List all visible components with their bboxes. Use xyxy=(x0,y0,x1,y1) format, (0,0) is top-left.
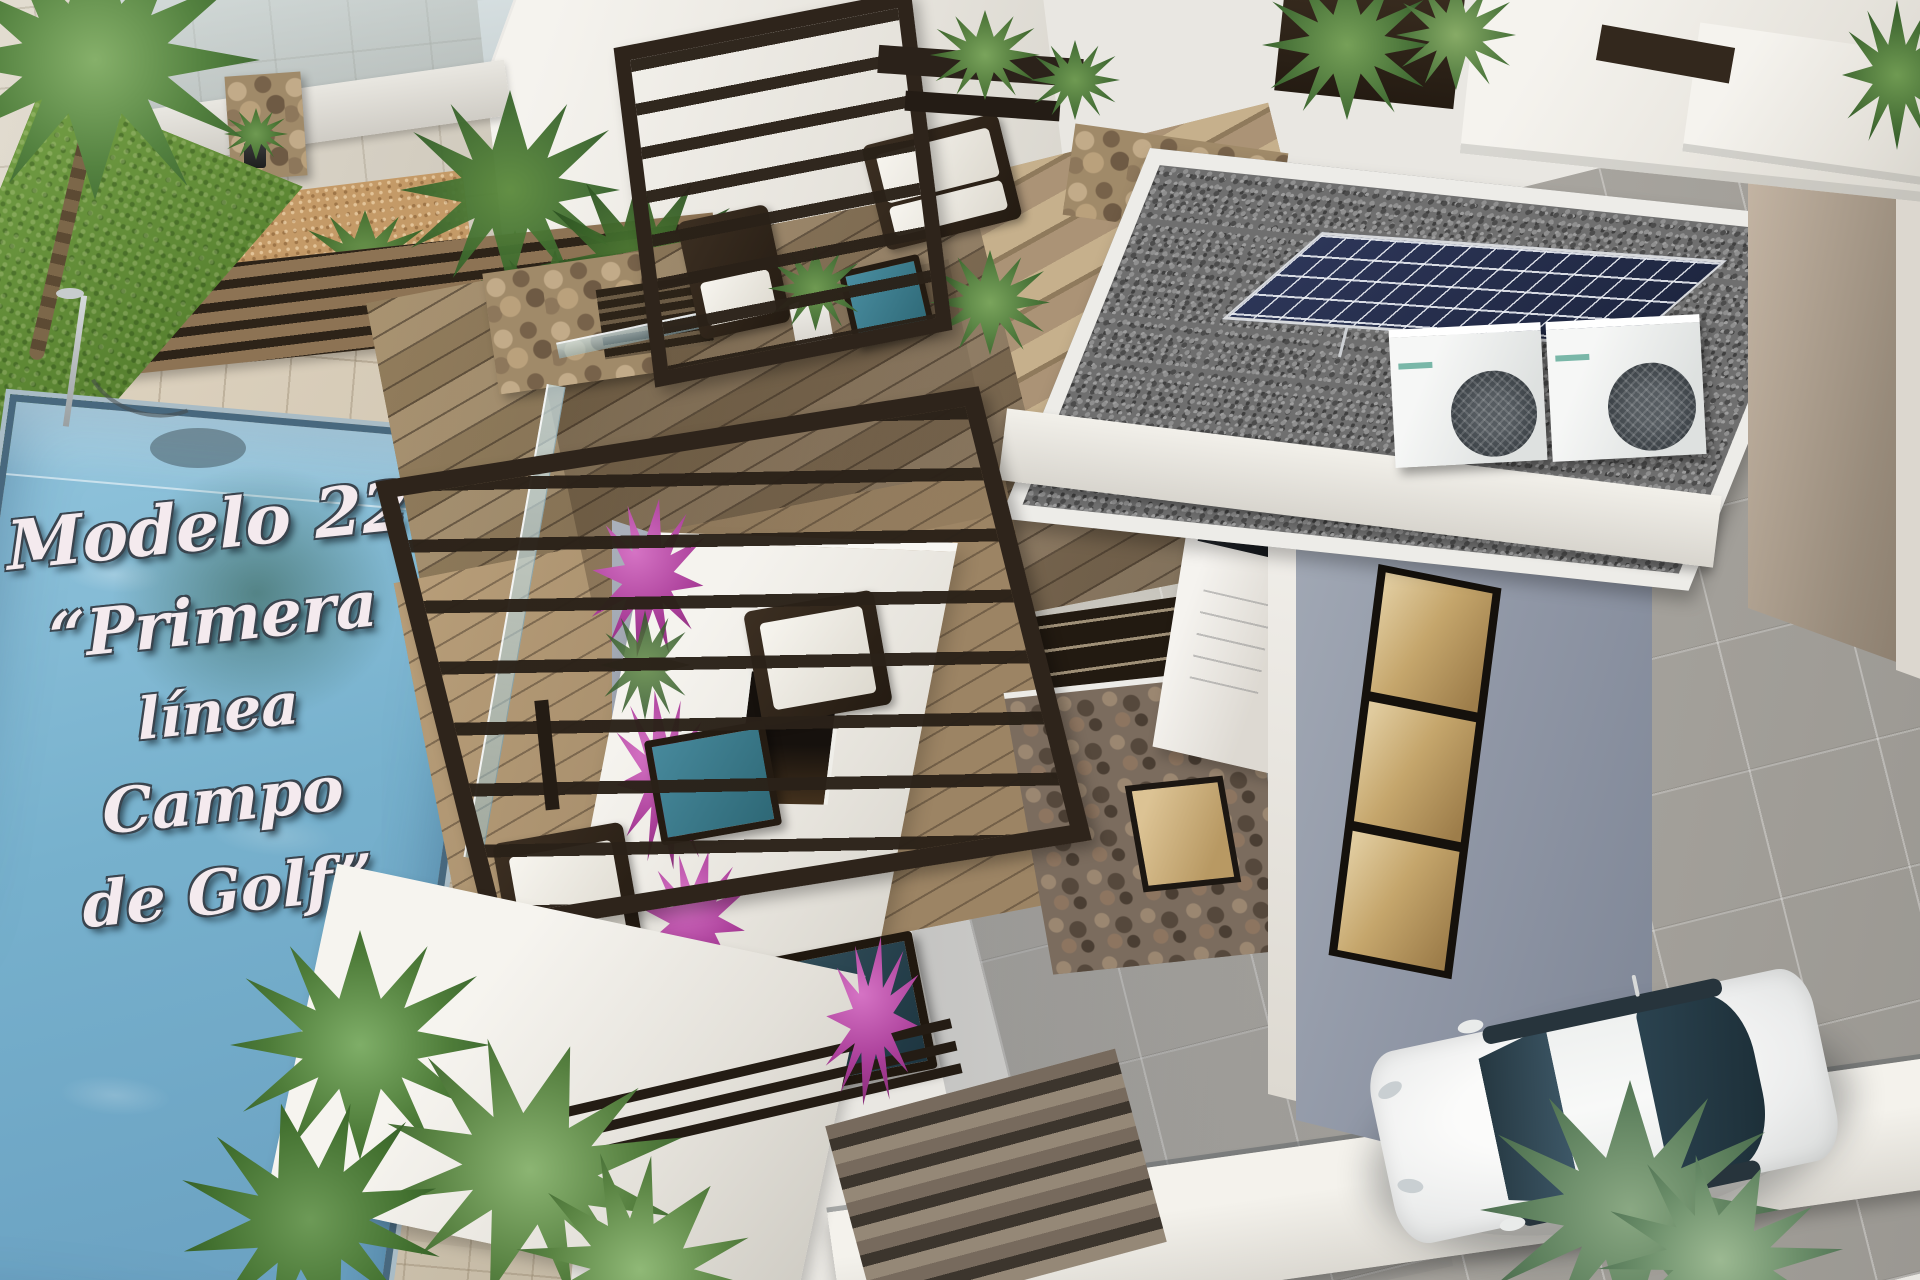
pool-watermark-line: “Primera xyxy=(48,573,379,670)
pool-watermark-line: línea xyxy=(136,674,301,748)
car-headlight xyxy=(1375,1078,1405,1103)
ac-unit xyxy=(1545,314,1706,462)
tower-window-pane xyxy=(1337,830,1459,970)
kitchen-drawer-lines xyxy=(1190,589,1272,694)
villa-aerial-render: Modelo 22 “Primera línea Campo de Golf” xyxy=(0,0,1920,1280)
ac-logo xyxy=(1398,362,1432,370)
ac-fan xyxy=(1606,360,1698,452)
car-headlight xyxy=(1397,1178,1424,1195)
pool-watermark-line: Modelo 22 xyxy=(5,472,411,581)
pergola-lower xyxy=(375,386,1092,935)
accent-window xyxy=(1125,776,1241,893)
pool-shower-shadow xyxy=(150,428,246,468)
tower-window-pane xyxy=(1354,701,1476,841)
ac-unit xyxy=(1388,322,1547,468)
pool-shower-head xyxy=(56,288,84,299)
tower-window-pane xyxy=(1370,572,1492,712)
pool-watermark-line: Campo xyxy=(101,757,345,843)
ac-fan xyxy=(1449,368,1539,458)
ac-logo xyxy=(1555,354,1589,362)
tower-window xyxy=(1329,564,1502,979)
